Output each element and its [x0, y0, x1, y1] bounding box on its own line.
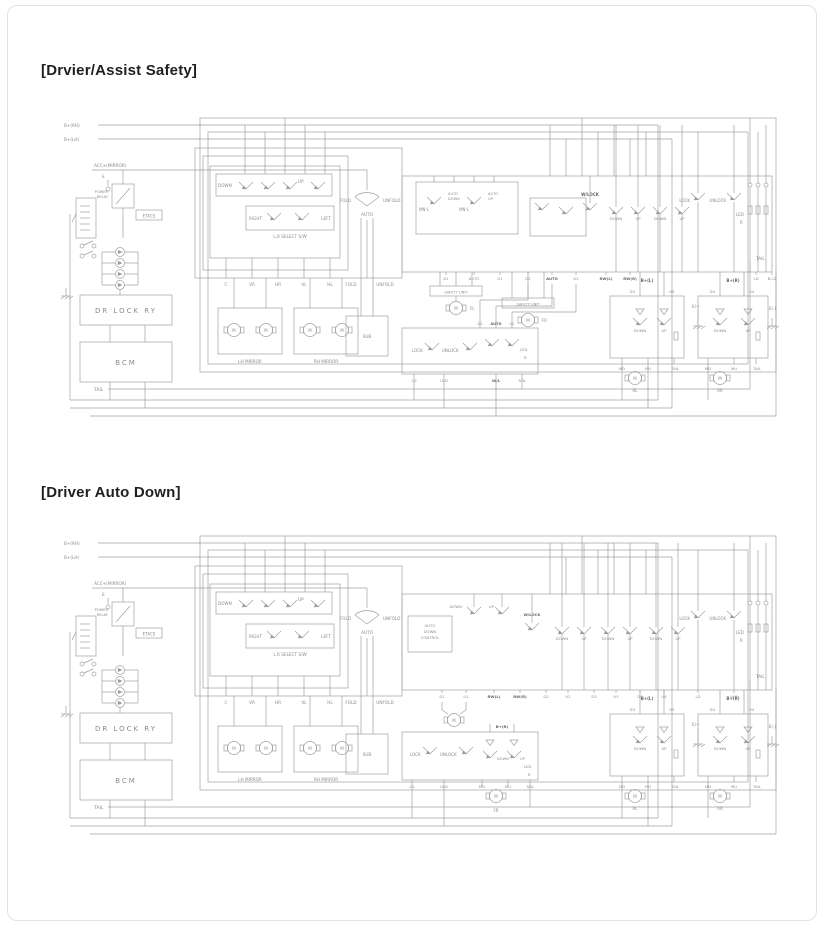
label-bp_l: B+(L)	[641, 278, 654, 283]
rear-left-window-box	[610, 714, 684, 776]
motor-mount	[625, 793, 629, 799]
label-fold: FOLD	[340, 198, 351, 203]
label-tail: TAIL	[93, 805, 104, 811]
label-unfold: UNFOLD	[376, 700, 393, 705]
label-d2: D2	[543, 694, 549, 699]
switch-icon	[609, 207, 623, 214]
switch-icon	[657, 736, 671, 743]
wire	[701, 326, 705, 329]
label-m: M	[526, 318, 530, 323]
diode-icon	[660, 727, 668, 733]
label-tail: TAIL	[752, 366, 762, 371]
label-sub: SUB	[363, 752, 372, 757]
connector-ring	[756, 183, 760, 187]
wire	[355, 197, 367, 206]
motor-mount	[727, 793, 731, 799]
label-fl: FL	[470, 306, 475, 311]
label-etacs: ETACS	[143, 632, 156, 637]
resistor-icon	[756, 750, 760, 758]
label-relay: RELAY	[97, 613, 109, 617]
label-m: M	[308, 746, 312, 751]
label-up: UP	[520, 757, 526, 761]
label-bld: B.LD	[768, 276, 777, 281]
switch-icon	[583, 203, 597, 210]
switch-icon	[535, 203, 549, 210]
fold-switch-icon	[355, 193, 379, 197]
switch-icon	[675, 207, 689, 214]
wire	[72, 214, 76, 222]
diode-icon	[510, 740, 518, 746]
switch-icon	[653, 207, 667, 214]
rear-left-window-box	[610, 296, 684, 358]
switch-icon	[649, 627, 663, 634]
motor-mount	[224, 327, 228, 333]
label-b_lh: B+(LH)	[64, 137, 79, 142]
diode-icon	[118, 690, 123, 694]
resistor-icon	[674, 750, 678, 758]
label-rl: RL	[632, 806, 638, 811]
switch-icon	[295, 213, 309, 220]
motor-mount	[224, 745, 228, 751]
motor-mount	[710, 375, 714, 381]
switch-icon	[239, 182, 253, 189]
label-r: R	[528, 772, 531, 777]
motor-mount	[349, 327, 353, 333]
label-e: E	[102, 592, 105, 597]
label-down: DOWN	[424, 629, 437, 634]
connector-ring	[92, 254, 96, 258]
switch-icon	[507, 751, 521, 758]
motor-mount	[256, 745, 260, 751]
label-vl: VL	[301, 282, 307, 287]
label-ld: LD	[695, 694, 700, 699]
motor-mount	[332, 327, 336, 333]
motor-mount	[300, 745, 304, 751]
switch-icon	[657, 318, 671, 325]
diagram1-title: [Drvier/Assist Safety]	[41, 62, 197, 79]
diode-icon	[118, 283, 123, 287]
wire	[72, 632, 76, 640]
diode-icon	[716, 309, 724, 315]
motor-mount	[273, 745, 277, 751]
label-m: M	[452, 718, 456, 723]
wire	[693, 326, 697, 329]
connector-ring	[756, 601, 760, 605]
motor-mount	[241, 745, 245, 751]
label-lr_select: L,R SELECT S/W	[273, 234, 306, 239]
rear-right-window-box	[698, 296, 768, 358]
label-mu: MU	[731, 366, 737, 371]
mirror-switch-box	[210, 166, 340, 258]
label-e_minus: E(-)	[692, 722, 700, 727]
connector-ring	[764, 183, 768, 187]
switch-icon	[633, 736, 647, 743]
wire	[84, 241, 93, 245]
label-down: DOWN	[634, 328, 647, 333]
label-tail: TAIL	[752, 784, 762, 789]
label-up: UP	[298, 597, 304, 602]
motor-mount	[256, 327, 260, 333]
label-wlock: W/LOCK	[524, 612, 542, 617]
wire	[460, 710, 466, 714]
label-hr: HR	[275, 700, 281, 705]
switch-icon	[427, 197, 441, 204]
wiring-diagram-driver-assist-safety: B+(RH)B+(LH)ACC+(MIRROR)EPOWERRELAYETACS…	[50, 110, 790, 422]
switch-icon	[623, 627, 637, 634]
resistor-icon	[756, 332, 760, 340]
label-bcm: BCM	[115, 777, 137, 785]
label-left: LEFT	[321, 634, 331, 639]
label-c: C	[225, 700, 228, 705]
wire	[84, 659, 93, 663]
label-down: DOWN	[497, 757, 509, 761]
switch-icon	[713, 736, 727, 743]
label-auto: AUTO	[448, 192, 458, 196]
wire	[693, 744, 697, 747]
label-wlock: W/LOCK	[581, 192, 600, 197]
connector-ring	[92, 662, 96, 666]
connector-ring	[748, 601, 752, 605]
label-tail: TAIL	[670, 784, 680, 789]
label-m: M	[340, 746, 344, 751]
motor-mount	[300, 327, 304, 333]
label-lh_mirror: LH MIRROR	[238, 359, 262, 364]
mirror-inner-rect	[203, 156, 348, 270]
label-c: C	[225, 282, 228, 287]
mirror-switch-box	[210, 584, 340, 676]
wiring-diagram-driver-auto-down: B+(RH)B+(LH)ACC+(MIRROR)EPOWERRELAYETACS…	[50, 528, 790, 840]
label-dr_lock_ry: DR LOCK RY	[95, 725, 157, 733]
wire	[771, 326, 775, 329]
switch-icon	[555, 627, 569, 634]
label-rw_l: RW(L)	[487, 694, 500, 699]
label-d4: D4	[710, 707, 716, 712]
motor-mount	[518, 317, 522, 323]
connector-ring	[92, 244, 96, 248]
label-auto: AUTO	[546, 276, 558, 281]
label-auto: AUTO	[425, 623, 436, 628]
label-unfold: UNFOLD	[376, 282, 393, 287]
wire	[701, 744, 705, 747]
switch-icon	[727, 193, 741, 200]
switch-icon	[601, 627, 615, 634]
wire	[355, 615, 367, 624]
switch-icon	[459, 747, 473, 754]
label-b_rh: B+(RH)	[64, 541, 80, 546]
label-mu: MU	[731, 784, 737, 789]
connector-ring	[92, 672, 96, 676]
label-power: POWER	[95, 608, 109, 612]
label-right: RIGHT	[249, 216, 263, 221]
label-rr: RR	[717, 806, 723, 811]
label-bp_r: B+(R)	[496, 724, 509, 729]
fold-switch-icon	[355, 611, 379, 615]
wire	[84, 251, 93, 255]
wire	[116, 188, 130, 204]
label-d1: D1	[443, 276, 449, 281]
label-hl: HL	[327, 282, 333, 287]
label-bcm: BCM	[115, 359, 137, 367]
switch-icon	[727, 611, 741, 618]
label-m: M	[454, 306, 458, 311]
label-up: UP	[661, 746, 667, 751]
label-mnl: MN'L	[459, 207, 470, 212]
label-u2: U2	[573, 276, 579, 281]
wire	[697, 326, 701, 329]
label-unlock: UNLOCK	[709, 616, 726, 621]
diode-icon	[118, 679, 123, 683]
motor-mount	[535, 317, 539, 323]
switch-icon	[467, 197, 481, 204]
switch-icon	[467, 607, 481, 614]
switch-icon	[495, 607, 509, 614]
label-m: M	[308, 328, 312, 333]
switch-icon	[559, 207, 573, 214]
label-m: M	[718, 794, 722, 799]
mirror-updown-row	[216, 592, 332, 614]
diagram2-title: [Driver Auto Down]	[41, 484, 181, 501]
switch-icon	[283, 182, 297, 189]
connector-ring	[80, 662, 84, 666]
label-bp_r: B+(R)	[726, 278, 739, 283]
label-fold: FOLD	[345, 282, 356, 287]
wire	[775, 744, 779, 747]
diode-icon	[118, 250, 123, 254]
label-relay: RELAY	[97, 195, 109, 199]
label-r: R	[740, 220, 743, 225]
mirror-updown-row	[216, 174, 332, 196]
label-up: UP	[745, 746, 751, 751]
label-led: LED	[736, 212, 744, 217]
switch-icon	[423, 747, 437, 754]
label-auto: AUTO	[469, 276, 480, 281]
resistor-icon	[674, 332, 678, 340]
label-up: UP	[627, 636, 633, 641]
wire	[84, 669, 93, 673]
label-sub: SUB	[363, 334, 372, 339]
label-lr_select: L,R SELECT S/W	[273, 652, 306, 657]
label-hl: HL	[327, 700, 333, 705]
wire	[69, 296, 73, 299]
label-up: UP	[298, 179, 304, 184]
label-m: M	[232, 328, 236, 333]
bus-rect-inner	[208, 132, 748, 364]
label-r: R	[524, 355, 527, 360]
label-e_minus: E(-)	[692, 304, 700, 309]
label-r: R	[740, 638, 743, 643]
label-up: UP	[635, 216, 641, 221]
label-d1: D1	[439, 694, 445, 699]
diode-icon	[636, 309, 644, 315]
switch-icon	[295, 631, 309, 638]
switch-icon	[691, 193, 705, 200]
label-rw_l: RW(L)	[599, 276, 612, 281]
label-lock: LOCK	[412, 348, 423, 353]
label-unlock: UNLOCK	[440, 752, 457, 757]
label-u3: U3	[669, 289, 675, 294]
motor-mount	[642, 793, 646, 799]
connector-ring	[80, 254, 84, 258]
label-auto: AUTO	[488, 192, 498, 196]
wire	[61, 296, 65, 299]
label-u4: U4	[749, 289, 755, 294]
label-rw_r: RW(R)	[623, 276, 637, 281]
motor-mount	[317, 327, 321, 333]
label-e: E	[102, 174, 105, 179]
wire	[697, 744, 701, 747]
label-fr: FR	[542, 318, 547, 323]
label-vr: VR	[249, 700, 255, 705]
wire	[767, 744, 771, 747]
label-rr: RR	[717, 388, 723, 393]
label-down: DOWN	[448, 197, 460, 201]
switch-icon	[463, 343, 477, 350]
label-down: DOWN	[218, 183, 232, 188]
motor-mount	[332, 745, 336, 751]
auto-down-control-box	[408, 616, 452, 652]
diode-icon	[118, 701, 123, 705]
label-acc: ACC+(MIRROR)	[94, 163, 127, 168]
switch-icon	[713, 318, 727, 325]
label-u1: U1	[497, 276, 503, 281]
label-fold: FOLD	[340, 616, 351, 621]
label-e_minus: E(-)	[769, 724, 777, 729]
label-down: DOWN	[218, 601, 232, 606]
label-acc: ACC+(MIRROR)	[94, 581, 127, 586]
switch-icon	[267, 631, 281, 638]
label-u4: U4	[749, 707, 755, 712]
label-hr: HR	[275, 282, 281, 287]
label-fold: FOLD	[345, 700, 356, 705]
switch-icon	[671, 627, 685, 634]
label-d3: D3	[630, 289, 636, 294]
label-rh_mirror: RH MIRROR	[314, 359, 338, 364]
switch-icon	[505, 339, 519, 346]
label-u2: U2	[565, 694, 571, 699]
wire	[367, 197, 379, 206]
diode-icon	[118, 668, 123, 672]
switch-icon	[239, 600, 253, 607]
main-switch-box	[402, 176, 772, 272]
label-d3: D3	[630, 707, 636, 712]
wire	[65, 714, 69, 717]
label-u3: U3	[669, 707, 675, 712]
switch-icon	[311, 600, 325, 607]
wire	[116, 606, 130, 622]
label-up: UP	[675, 636, 681, 641]
motor-mount	[349, 745, 353, 751]
wire	[767, 326, 771, 329]
motor-mount	[642, 375, 646, 381]
motor-mount	[241, 327, 245, 333]
label-etacs: ETACS	[143, 214, 156, 219]
diode-icon	[716, 727, 724, 733]
diode-icon	[118, 272, 123, 276]
wire	[65, 296, 69, 299]
switch-icon	[261, 600, 275, 607]
content-card: [Drvier/Assist Safety] B+(RH)B+(LH)ACC+(…	[7, 5, 817, 921]
label-rh_mirror: RH MIRROR	[314, 777, 338, 782]
motor-mount	[446, 305, 450, 311]
diode-icon	[118, 261, 123, 265]
switch-icon	[631, 207, 645, 214]
label-lock: LOCK	[410, 752, 421, 757]
label-dr_lock_ry: DR LOCK RY	[95, 307, 157, 315]
connector-ring	[80, 244, 84, 248]
wire	[69, 714, 73, 717]
label-power: POWER	[95, 190, 109, 194]
label-up: UP	[661, 328, 667, 333]
switch-icon	[525, 623, 539, 630]
wire	[771, 744, 775, 747]
label-m: M	[232, 746, 236, 751]
label-safety_unit: SAFETY UNIT	[444, 291, 468, 295]
diode-icon	[636, 727, 644, 733]
label-led: LED	[520, 347, 528, 352]
label-b_rh: B+(RH)	[64, 123, 80, 128]
bus-rect-inner	[208, 550, 748, 782]
label-fr: FR	[493, 808, 498, 813]
label-u1: U1	[463, 694, 469, 699]
switch-icon	[691, 611, 705, 618]
label-ld: LD	[753, 276, 758, 281]
label-unlock: UNLOCK	[709, 198, 726, 203]
switch-icon	[311, 182, 325, 189]
label-rw_r: RW(R)	[513, 694, 527, 699]
label-m: M	[340, 328, 344, 333]
label-lock: LOCK	[679, 616, 690, 621]
switch-icon	[483, 751, 497, 758]
switch-icon	[283, 600, 297, 607]
label-down: DOWN	[449, 604, 462, 609]
wire	[61, 714, 65, 717]
label-right: RIGHT	[249, 634, 263, 639]
diode-icon	[486, 740, 494, 746]
motor-mount	[727, 375, 731, 381]
switch-icon	[485, 339, 499, 346]
motor-mount	[463, 305, 467, 311]
motor-mount	[710, 793, 714, 799]
label-rl: RL	[632, 388, 638, 393]
label-unfold: UNFOLD	[383, 198, 400, 203]
label-up: UP	[489, 604, 495, 609]
label-d4: D4	[637, 694, 643, 699]
label-tail: TAIL	[93, 387, 104, 393]
label-vr: VR	[249, 282, 255, 287]
label-m: M	[633, 794, 637, 799]
label-auto: AUTO	[361, 630, 373, 635]
label-tail: TAIL	[755, 256, 765, 261]
label-b_lh: B+(LH)	[64, 555, 79, 560]
label-tail: TAIL	[670, 366, 680, 371]
label-led: LED	[524, 764, 532, 769]
label-unlock: UNLOCK	[442, 348, 459, 353]
label-down: DOWN	[714, 328, 727, 333]
label-left: LEFT	[321, 216, 331, 221]
label-m: M	[494, 794, 498, 799]
motor-mount	[461, 717, 465, 723]
label-led: LED	[736, 630, 744, 635]
motor-mount	[444, 717, 448, 723]
motor-mount	[273, 327, 277, 333]
page: [Drvier/Assist Safety] B+(RH)B+(LH)ACC+(…	[0, 0, 823, 926]
label-lock: LOCK	[679, 198, 690, 203]
label-e_minus: E(-)	[769, 306, 777, 311]
rear-right-window-box	[698, 714, 768, 776]
label-up: UP	[488, 197, 494, 201]
switch-icon	[425, 343, 439, 350]
diode-icon	[660, 309, 668, 315]
